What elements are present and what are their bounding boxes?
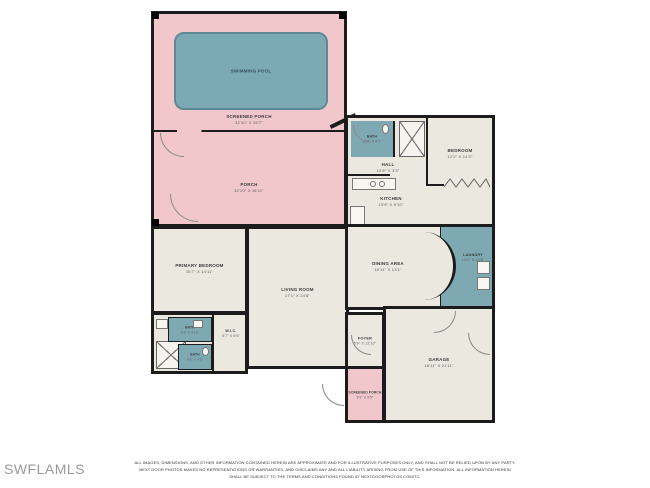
room-name: GARAGE <box>386 357 492 362</box>
room-label: GARAGE 18'11" X 21'11" <box>386 357 492 368</box>
room-name: KITCHEN <box>356 196 426 201</box>
stove-burner-icon <box>379 181 385 187</box>
room-bath-3: BATH 9'9" X 4'5" <box>178 344 212 370</box>
room-dims: 32'10" X 25'7" <box>154 120 344 125</box>
interior-wall <box>426 184 444 186</box>
door-arc-icon <box>468 333 490 355</box>
room-name: SWIMMING POOL <box>176 69 326 74</box>
room-dims: 10'6" X 6'1" <box>351 140 393 144</box>
door-arc-icon <box>434 311 456 333</box>
shower-icon <box>399 121 425 157</box>
sink-icon <box>193 320 203 328</box>
room-label: LAUNDRY 13'2" X 13'8" <box>453 253 493 262</box>
room-bath-2: BATH 9'9" X 4'10" <box>168 317 212 342</box>
room-label: SCREENED PORCH 5'9" X 9'5" <box>348 390 382 399</box>
sink-icon <box>156 319 168 329</box>
room-label: BEDROOM 12'2" X 14'3" <box>428 148 492 159</box>
room-label: DINING AREA 16'11" X 13'1" <box>348 261 428 272</box>
room-name: DINING AREA <box>348 261 428 266</box>
room-foyer: FOYER 5'9" X 12'10" <box>345 312 385 369</box>
door-arc-icon <box>322 384 344 406</box>
room-name: SCREENED PORCH <box>348 390 382 394</box>
room-name: PORCH <box>154 182 344 187</box>
room-living-room: LIVING ROOM 17'1" X 24'8" <box>246 226 349 369</box>
closet-zigzag-icon <box>444 178 490 188</box>
room-label: HALL 12'8" X 3'3" <box>348 162 428 173</box>
room-label: PORCH 32'10" X 16'11" <box>154 182 344 193</box>
fridge-icon <box>350 206 365 225</box>
wall-post <box>339 12 346 19</box>
room-label: SWIMMING POOL <box>176 69 326 74</box>
toilet-icon <box>202 347 209 356</box>
room-screened-porch-bottom: SCREENED PORCH 5'9" X 9'5" <box>345 366 385 423</box>
wall-post <box>152 219 159 226</box>
room-label: SCREENED PORCH 32'10" X 25'7" <box>154 114 344 125</box>
door-arc-icon <box>351 335 371 355</box>
room-dims: 32'10" X 16'11" <box>154 188 344 193</box>
interior-wall <box>154 130 344 132</box>
door-arc-icon <box>170 194 198 222</box>
room-screened-porch-top: SWIMMING POOL SCREENED PORCH 32'10" X 25… <box>151 11 347 227</box>
room-bath-1: BATH 10'6" X 6'1" <box>351 121 395 157</box>
room-garage: GARAGE 18'11" X 21'11" <box>383 306 495 423</box>
room-name: W.I.C. <box>212 329 250 333</box>
room-dims: 18'11" X 21'11" <box>386 363 492 368</box>
room-name: PRIMARY BEDROOM <box>154 263 245 268</box>
room-primary-bedroom: PRIMARY BEDROOM 15'7" X 14'11" <box>151 226 248 314</box>
room-name: SCREENED PORCH <box>154 114 344 119</box>
room-label: BATH 9'9" X 4'10" <box>169 325 211 334</box>
room-dims: 17'1" X 24'8" <box>249 293 346 298</box>
room-label: PRIMARY BEDROOM 15'7" X 14'11" <box>154 263 245 274</box>
dryer-icon <box>477 277 490 290</box>
door-arc-icon <box>160 133 184 157</box>
bath-wic-block: BATH 9'9" X 4'10" BATH 9'9" X 4'5" W.I.C… <box>151 312 248 374</box>
room-label: W.I.C. 5'7" X 9'5" <box>212 329 250 338</box>
room-label: KITCHEN 13'9" X 9'10" <box>356 196 426 207</box>
room-dims: 12'2" X 14'3" <box>428 154 492 159</box>
watermark: SWFLAMLS <box>4 461 85 477</box>
room-dims: 5'7" X 9'5" <box>212 334 250 338</box>
room-label: LIVING ROOM 17'1" X 24'8" <box>249 287 346 298</box>
washer-icon <box>477 261 490 274</box>
room-dims: 13'2" X 13'8" <box>453 258 493 262</box>
disclaimer: ALL IMAGES, DIMENSIONS, AND OTHER INFORM… <box>120 460 530 480</box>
room-dims: 5'9" X 9'5" <box>348 395 382 399</box>
interior-wall <box>212 315 214 371</box>
house-top-right-block: BATH 10'6" X 6'1" HALL 12'8" X 3'3" BEDR… <box>345 115 495 228</box>
floor-plan: SWIMMING POOL SCREENED PORCH 32'10" X 25… <box>0 0 650 488</box>
room-dims: 16'11" X 13'1" <box>348 267 428 272</box>
disclaimer-line: SHALL BE SUBJECT TO THE TERMS AND CONDIT… <box>120 474 530 481</box>
wall-post <box>152 12 159 19</box>
disclaimer-line: ALL IMAGES, DIMENSIONS, AND OTHER INFORM… <box>120 460 530 467</box>
toilet-icon <box>382 124 389 134</box>
room-name: BEDROOM <box>428 148 492 153</box>
room-name: HALL <box>348 162 428 167</box>
room-swimming-pool: SWIMMING POOL <box>174 32 328 110</box>
room-dims: 12'8" X 3'3" <box>348 168 428 173</box>
room-dims: 13'9" X 9'10" <box>356 202 426 207</box>
room-dims: 9'9" X 4'5" <box>179 358 211 362</box>
disclaimer-line: NEXT DOOR PHOTOS MAKES NO REPRESENTATION… <box>120 467 530 474</box>
room-name: BATH <box>169 325 211 329</box>
room-name: LIVING ROOM <box>249 287 346 292</box>
room-dims: 15'7" X 14'11" <box>154 269 245 274</box>
room-name: LAUNDRY <box>453 253 493 257</box>
room-dims: 9'9" X 4'10" <box>169 330 211 334</box>
stove-burner-icon <box>370 181 376 187</box>
interior-wall <box>348 174 390 176</box>
